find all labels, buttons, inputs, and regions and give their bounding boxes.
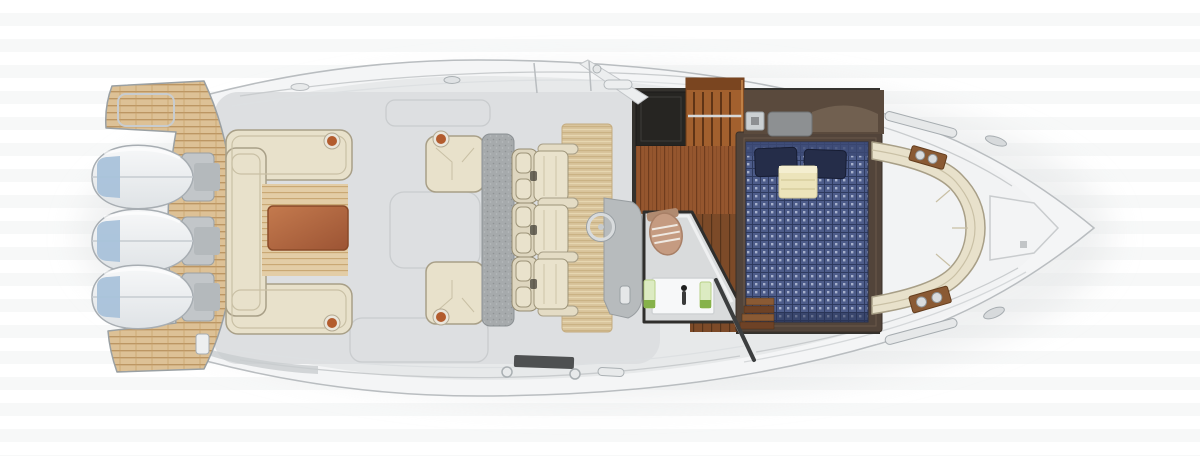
boarding-step-pad <box>514 355 574 369</box>
outboard-engine-1 <box>92 145 220 208</box>
grab-handle-top <box>604 80 632 89</box>
cabin-cutaway <box>632 78 884 360</box>
berth-headboard <box>744 90 884 136</box>
headboard-panel <box>768 112 812 136</box>
fuel-fill-cap <box>593 65 601 73</box>
steering-wheel-hub <box>598 224 604 230</box>
helm-seat-3 <box>512 252 578 316</box>
cleat-bottom <box>598 367 624 376</box>
aft-facing-bench <box>482 134 514 326</box>
aft-settee <box>226 130 352 334</box>
yacht-floorplan-render <box>0 0 1200 456</box>
cleat-top <box>444 77 460 84</box>
cleat-top-aft <box>291 84 309 91</box>
galley-sole <box>636 146 746 214</box>
outboard-engine-2 <box>92 209 220 272</box>
faucet <box>681 285 687 291</box>
floorplan-canvas <box>0 0 1200 456</box>
ring-pull-2 <box>570 369 580 379</box>
helm-footrest <box>620 286 630 304</box>
folded-blanket <box>779 166 817 198</box>
cockpit-table <box>268 206 348 250</box>
platform-latch <box>196 334 209 354</box>
anchor-locker-latch <box>1020 241 1027 248</box>
galley-cabinet <box>686 78 744 152</box>
outboard-engines <box>92 145 220 328</box>
helm-seats <box>512 144 578 316</box>
outboard-engine-3 <box>92 265 220 328</box>
ring-pull-1 <box>502 367 512 377</box>
